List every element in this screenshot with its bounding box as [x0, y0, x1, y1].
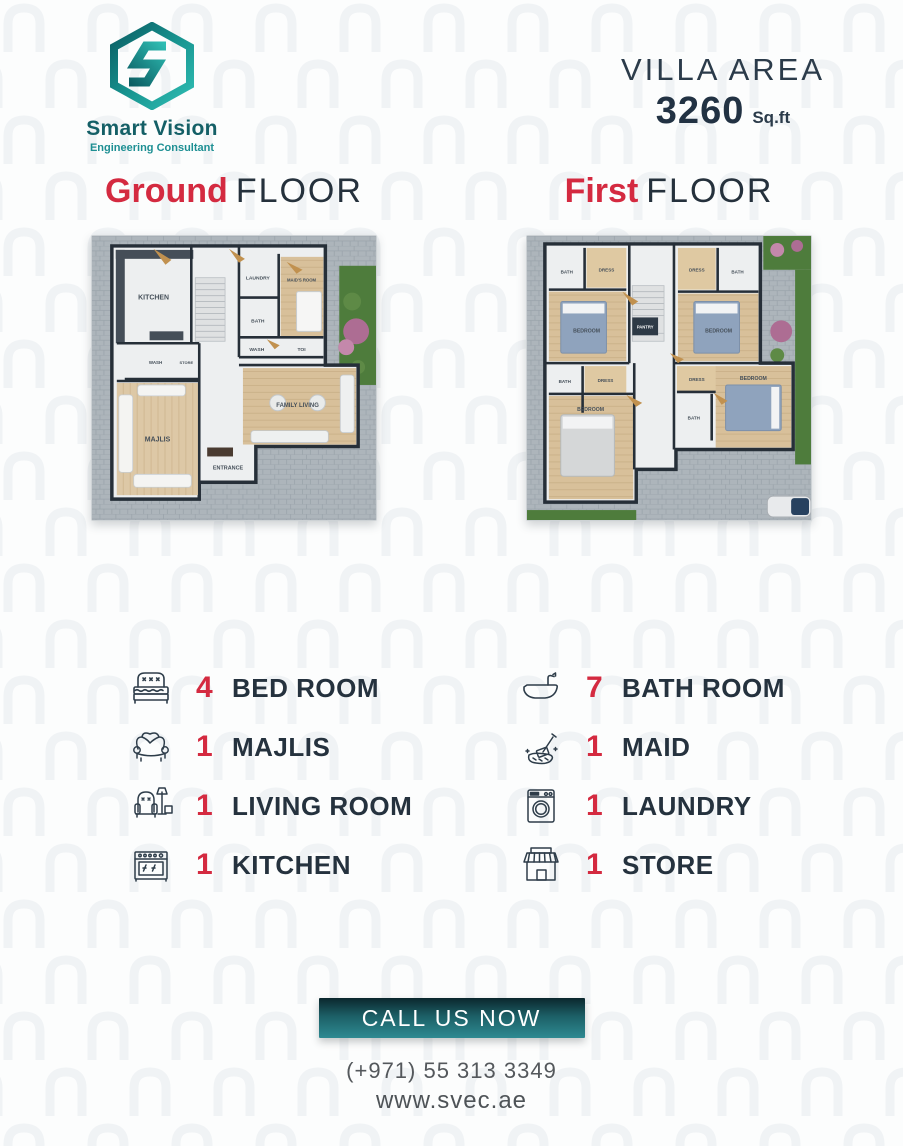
armchair-icon [122, 783, 180, 829]
room-label: ENTRANCE [213, 465, 244, 471]
first-floor-plan: BATH DRESS BEDROOM DRESS BATH BEDROOM PA… [526, 235, 812, 521]
room-label: DRESS [599, 268, 615, 273]
feature-maid: 1 MAID [512, 726, 842, 768]
feature-label: KITCHEN [232, 850, 351, 881]
feature-count: 1 [586, 730, 606, 764]
sofa-icon [122, 724, 180, 770]
room-label: DRESS [689, 377, 705, 382]
room-label: WASH [249, 347, 264, 353]
room-label: PANTRY [637, 324, 654, 329]
first-floor-column: FirstFLOOR [526, 172, 812, 521]
feature-store: 1 STORE [512, 844, 842, 886]
room-label: BATH [688, 416, 700, 421]
feature-count: 7 [586, 671, 606, 705]
room-label: STORE [180, 360, 194, 365]
brand-logo: Smart Vision Engineering Consultant [52, 22, 252, 154]
header: Smart Vision Engineering Consultant VILL… [0, 0, 903, 160]
feature-bed-room: 4 BED ROOM [122, 667, 452, 709]
first-floor-heading-highlight: First [565, 172, 639, 210]
feature-label: MAJLIS [232, 732, 330, 763]
features-grid: 4 BED ROOM 7 BATH ROOM [122, 667, 903, 886]
feature-label: LAUNDRY [622, 791, 752, 822]
storefront-icon [512, 842, 570, 888]
room-label: FAMILY LIVING [276, 403, 319, 409]
feature-count: 1 [196, 730, 216, 764]
villa-area-block: VILLA AREA 3260Sq.ft [621, 52, 833, 133]
first-floor-heading-word: FLOOR [646, 172, 773, 210]
floor-plans-section: GroundFLOOR [0, 172, 903, 521]
room-label: MAJLIS [145, 437, 171, 444]
feature-count: 1 [196, 848, 216, 882]
villa-area-value: 3260 [656, 90, 745, 132]
contact-block: (+971) 55 313 3349 www.svec.ae [0, 1058, 903, 1115]
room-label: BEDROOM [740, 376, 767, 382]
room-label: WASH [149, 360, 162, 365]
feature-count: 1 [586, 848, 606, 882]
brand-name: Smart Vision [52, 117, 252, 141]
washing-machine-icon [512, 783, 570, 829]
room-label: TOI [297, 347, 306, 353]
feature-label: LIVING ROOM [232, 791, 412, 822]
ground-floor-heading: GroundFLOOR [91, 172, 377, 211]
ground-floor-plan: KITCHEN LAUNDRY MAID'S ROOM BATH WASH TO… [91, 235, 377, 521]
flyer-page: Smart Vision Engineering Consultant VILL… [0, 0, 903, 1146]
feature-bath-room: 7 BATH ROOM [512, 667, 842, 709]
bed-icon [122, 665, 180, 711]
first-floor-heading: FirstFLOOR [526, 172, 812, 211]
feature-label: BATH ROOM [622, 673, 785, 704]
feature-count: 1 [586, 789, 606, 823]
feature-living-room: 1 LIVING ROOM [122, 785, 452, 827]
feature-label: BED ROOM [232, 673, 379, 704]
villa-area-label: VILLA AREA [621, 52, 825, 88]
website-url[interactable]: www.svec.ae [0, 1087, 903, 1115]
room-label: DRESS [598, 378, 614, 383]
call-us-now-button[interactable]: CALL US NOW [319, 998, 585, 1038]
ground-floor-column: GroundFLOOR [91, 172, 377, 521]
feature-label: STORE [622, 850, 714, 881]
stove-icon [122, 842, 180, 888]
bathtub-icon [512, 665, 570, 711]
room-label: BEDROOM [573, 328, 600, 334]
room-label: LAUNDRY [246, 276, 271, 282]
ground-floor-heading-word: FLOOR [236, 172, 363, 210]
cleaning-icon [512, 724, 570, 770]
smart-vision-logo-icon [100, 22, 204, 110]
feature-majlis: 1 MAJLIS [122, 726, 452, 768]
room-label: KITCHEN [138, 295, 169, 302]
room-label: BEDROOM [705, 328, 732, 334]
room-label: BEDROOM [577, 407, 604, 413]
villa-area-unit: Sq.ft [752, 108, 790, 127]
room-label: BATH [559, 379, 571, 384]
feature-label: MAID [622, 732, 690, 763]
phone-number[interactable]: (+971) 55 313 3349 [0, 1058, 903, 1084]
room-label: BATH [561, 270, 573, 275]
room-label: DRESS [689, 268, 705, 273]
room-label: BATH [731, 270, 743, 275]
feature-count: 1 [196, 789, 216, 823]
feature-kitchen: 1 KITCHEN [122, 844, 452, 886]
feature-count: 4 [196, 671, 216, 705]
ground-floor-heading-highlight: Ground [105, 172, 228, 210]
room-label: MAID'S ROOM [287, 278, 317, 283]
feature-laundry: 1 LAUNDRY [512, 785, 842, 827]
room-label: BATH [251, 318, 265, 324]
brand-tagline: Engineering Consultant [52, 142, 252, 154]
